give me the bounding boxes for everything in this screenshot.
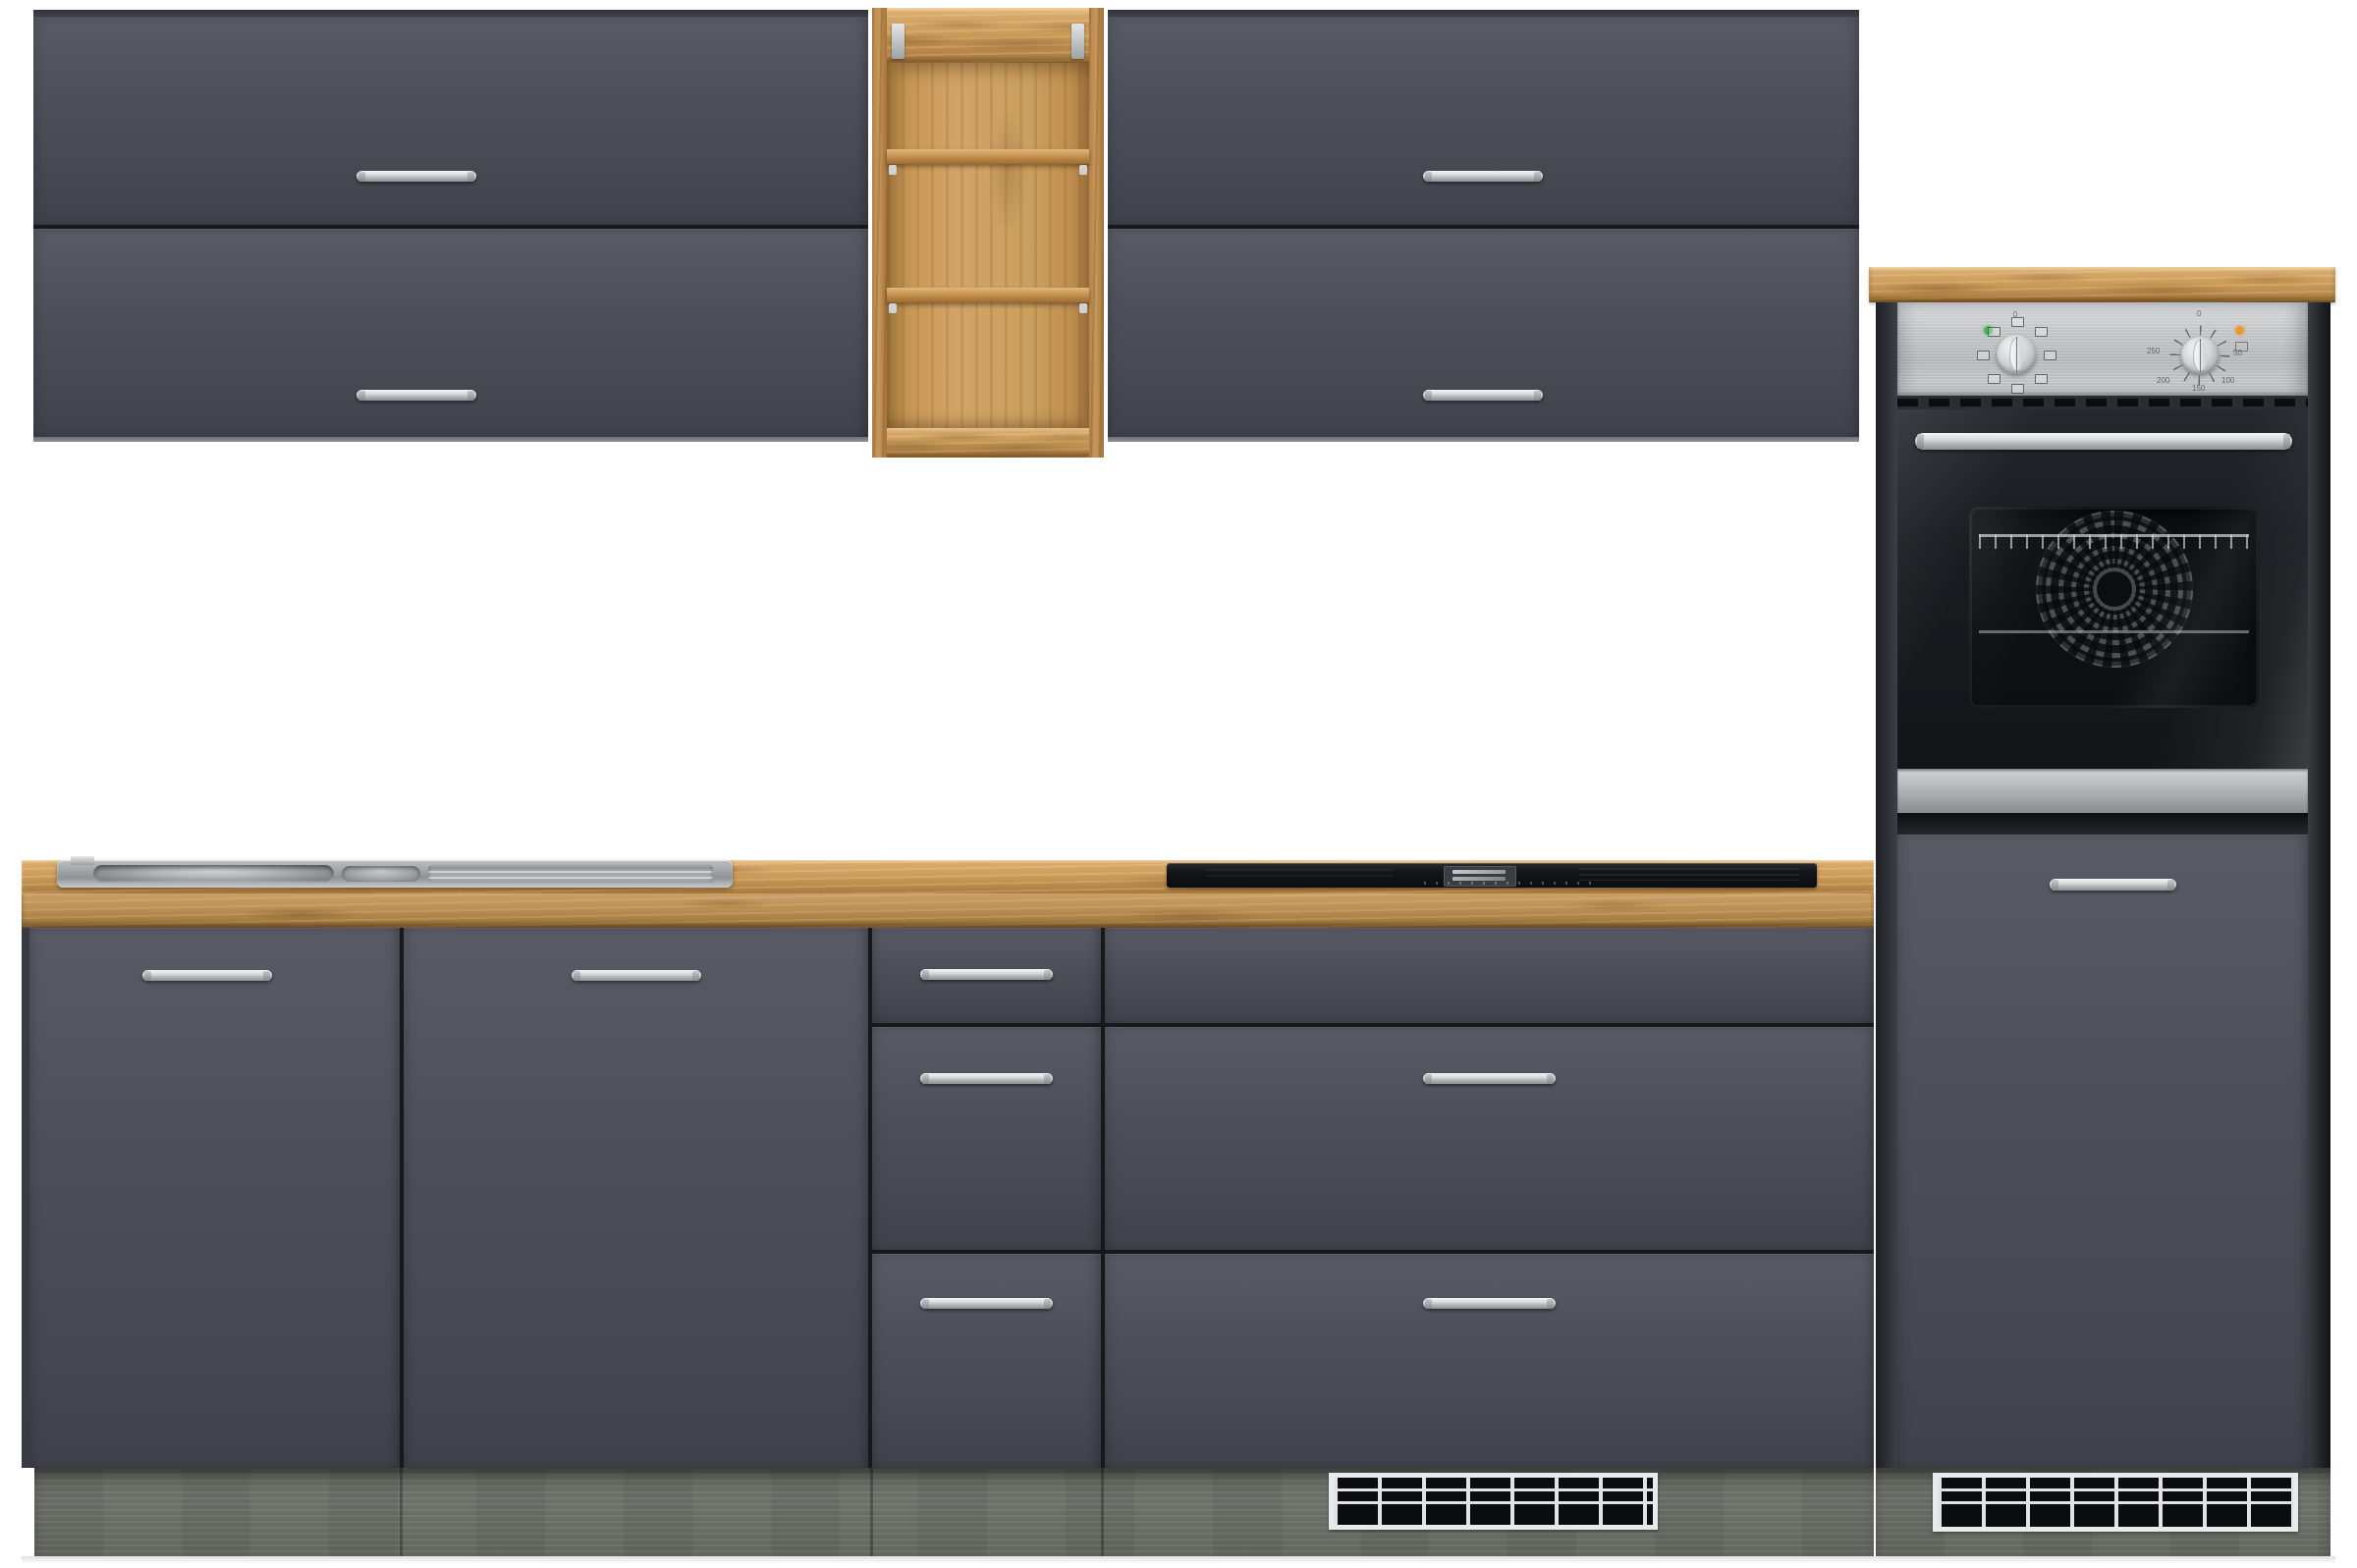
wall-left-upper-flap-door <box>33 18 868 225</box>
oven-function-icon <box>1988 327 2001 337</box>
sink-bowl <box>93 865 334 883</box>
oven-function-icon <box>1988 374 2001 384</box>
temp-label: 0 <box>2197 310 2201 318</box>
sink-back-lip <box>71 856 94 865</box>
oven-temperature-knob <box>2181 337 2219 374</box>
shelf-bottom-rail <box>872 428 1104 458</box>
door-handle <box>1423 390 1543 401</box>
oven-function-icon <box>2035 327 2048 337</box>
cooktop-zone-lines <box>1206 869 1393 881</box>
shelf-board <box>887 149 1089 164</box>
drawer-front-top-handleless <box>1105 928 1874 1023</box>
oven-function-knob <box>1997 335 2036 374</box>
base-cabinet-row <box>22 928 1874 1468</box>
shelf-interior-back <box>887 63 1089 428</box>
tall-unit-worktop-cap <box>1869 267 2335 302</box>
wall-right-lower-flap-door <box>1108 229 1859 437</box>
shelf-wall-bracket <box>1071 24 1084 59</box>
wall-left-lower-flap-door <box>33 229 868 437</box>
shelf-pin <box>1079 165 1087 175</box>
drawer-front-middle <box>1105 1027 1874 1250</box>
cooktop-markings <box>1424 882 1601 885</box>
cabinet-bottom-edge <box>33 437 868 442</box>
oven-function-icon <box>2011 384 2024 394</box>
oven-door <box>1897 409 2308 813</box>
cabinet-top-edge <box>1108 10 1859 18</box>
drawer-handle <box>1423 1073 1556 1084</box>
oven-door-bottom-strip <box>1897 769 2308 813</box>
plinth-seam <box>1101 1468 1104 1556</box>
drawer-unit <box>872 928 1101 1468</box>
drawer-handle <box>920 1073 1053 1084</box>
wall-cabinet-right <box>1108 10 1859 442</box>
cabinet-bottom-edge <box>1108 437 1859 442</box>
shelf-pin <box>889 303 897 313</box>
kitchen-product-photo: 0 0 50 100 150 200 250 <box>0 0 2357 1568</box>
oven-lower-seam <box>1897 813 2308 835</box>
oven-vent-grille <box>1933 1473 2298 1532</box>
door-handle <box>356 171 476 182</box>
oven-control-panel: 0 0 50 100 150 200 250 <box>1897 302 2308 396</box>
oven-door-handle <box>1915 433 2292 450</box>
shelf-pin <box>1079 303 1087 313</box>
shelf-right-stile <box>1089 8 1104 458</box>
temp-label: 250 <box>2147 348 2160 355</box>
tall-unit-front-column: 0 0 50 100 150 200 250 <box>1897 302 2308 1556</box>
oven-function-icon <box>2035 374 2048 384</box>
tall-unit-body: 0 0 50 100 150 200 250 <box>1876 302 2330 1556</box>
base-vent-grille <box>1329 1473 1658 1530</box>
sink-drainer <box>428 865 713 883</box>
indicator-light-orange <box>2235 326 2244 335</box>
shelf-board <box>887 288 1089 302</box>
thermostat-icon <box>2235 342 2248 351</box>
window-reflection <box>1969 507 2259 708</box>
counter-front-edge <box>22 893 1874 928</box>
sink-small-bowl <box>342 866 420 882</box>
shelf-wall-bracket <box>892 24 904 59</box>
shelf-left-stile <box>872 8 887 458</box>
induction-cooktop <box>1167 863 1817 888</box>
oven-function-icon <box>2044 351 2056 360</box>
base-door-1 <box>29 928 400 1468</box>
drawer-front-small <box>872 928 1101 1023</box>
side-panel-right <box>2308 302 2330 1556</box>
tall-oven-unit: 0 0 50 100 150 200 250 <box>1869 267 2335 1556</box>
control-display-bar <box>1453 877 1506 881</box>
open-shelf-unit <box>872 8 1104 458</box>
door-handle <box>572 970 701 981</box>
drawer-front-bottom <box>1105 1254 1874 1468</box>
shelf-top-rail <box>872 8 1104 63</box>
base-side-panel <box>22 928 29 1468</box>
control-display-bar <box>1453 870 1506 874</box>
oven-window <box>1969 507 2259 708</box>
cooktop-zone-lines <box>1579 868 1800 881</box>
plinth-seam <box>870 1468 873 1556</box>
temp-label: 150 <box>2192 385 2205 393</box>
cabinet-top-edge <box>33 10 868 18</box>
kitchen-sink <box>57 860 733 888</box>
door-handle <box>2050 879 2176 891</box>
wall-cabinet-left <box>33 10 868 442</box>
drawer-front-middle <box>872 1027 1101 1250</box>
tall-unit-lower-door <box>1897 835 2308 1468</box>
base-door-2 <box>404 928 868 1468</box>
plinth-seam <box>400 1468 403 1556</box>
side-panel-left <box>1876 302 1897 1556</box>
cooktop-drawer-unit <box>1105 928 1874 1468</box>
oven-function-icon <box>1977 351 1990 360</box>
door-handle <box>142 970 272 981</box>
oven-function-icon <box>2011 317 2024 327</box>
door-handle <box>356 390 476 401</box>
door-handle <box>1423 171 1543 182</box>
temp-label: 200 <box>2157 377 2169 385</box>
shelf-pin <box>889 165 897 175</box>
drawer-handle <box>920 969 1053 980</box>
wall-right-upper-flap-door <box>1108 18 1859 225</box>
oven-vent-slot-row <box>1897 396 2308 409</box>
drawer-front-bottom <box>872 1254 1101 1468</box>
floor-shadow <box>22 1556 2335 1564</box>
temp-label: 100 <box>2221 377 2234 385</box>
drawer-handle <box>1423 1298 1556 1309</box>
drawer-handle <box>920 1298 1053 1309</box>
